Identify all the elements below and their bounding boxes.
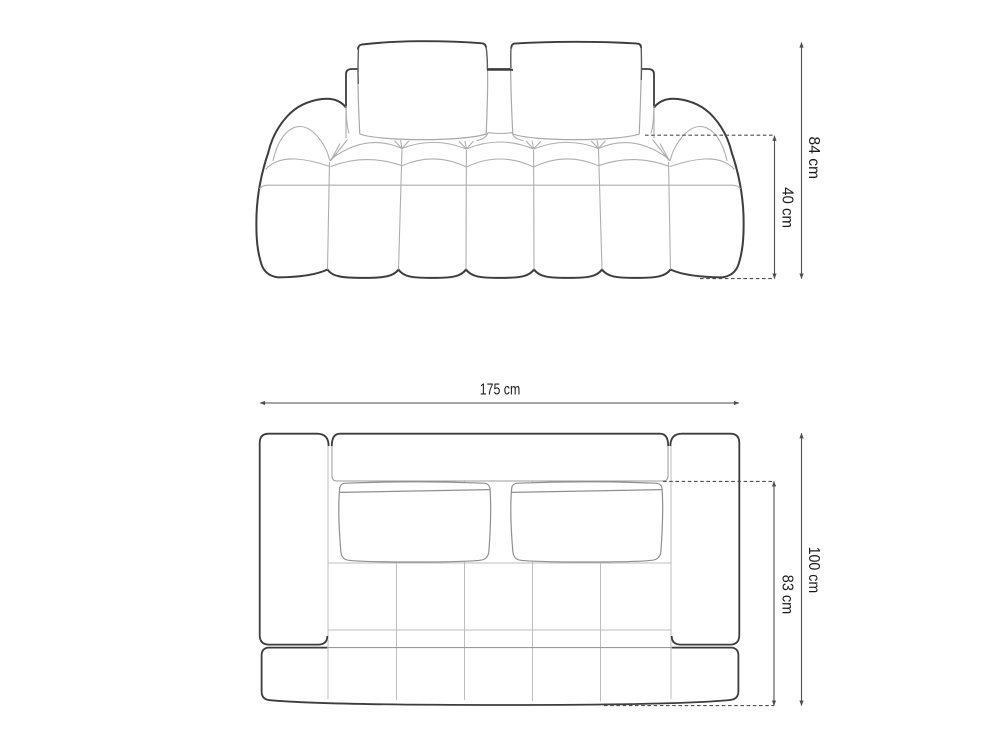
svg-text:83 cm: 83 cm	[778, 575, 795, 615]
svg-text:40 cm: 40 cm	[778, 187, 795, 228]
svg-text:175 cm: 175 cm	[480, 382, 521, 399]
svg-text:84 cm: 84 cm	[805, 137, 822, 180]
svg-text:100 cm: 100 cm	[805, 547, 822, 594]
